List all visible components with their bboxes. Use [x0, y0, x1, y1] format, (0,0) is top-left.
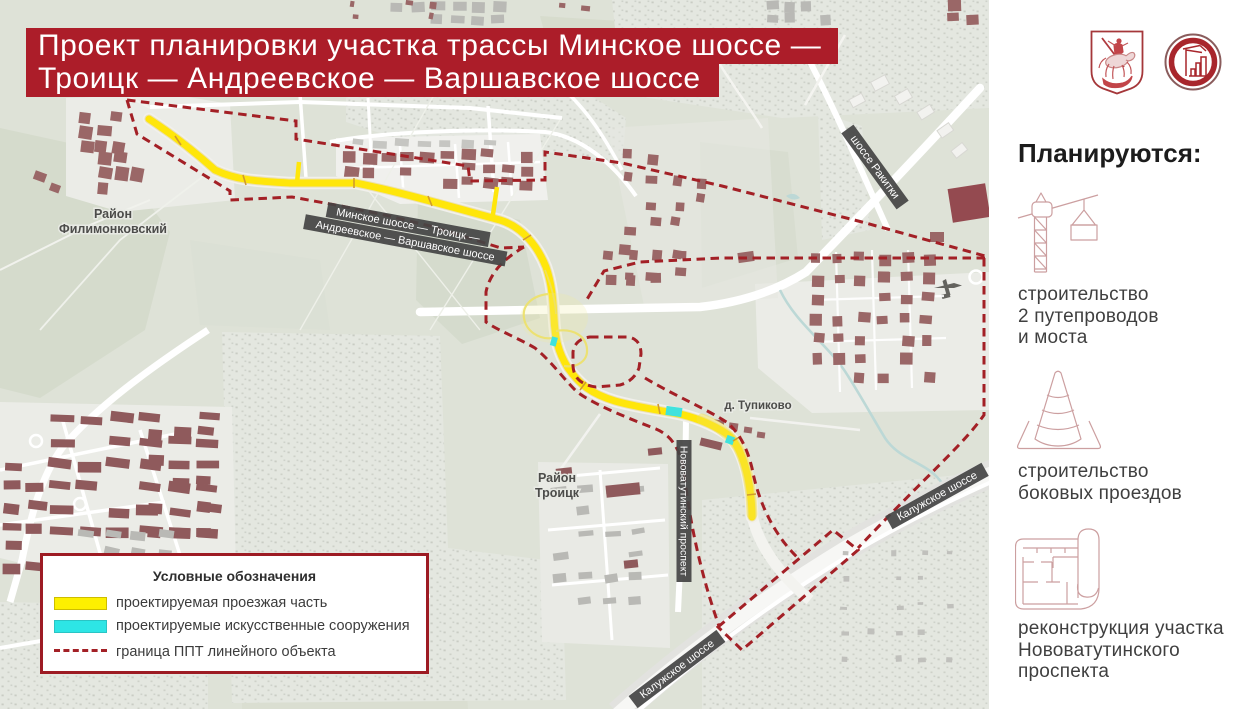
- svg-text:Район: Район: [538, 471, 576, 485]
- svg-text:Район: Район: [94, 207, 132, 221]
- svg-text:д. Тупиково: д. Тупиково: [724, 400, 791, 412]
- svg-text:Филимонковский: Филимонковский: [59, 222, 167, 236]
- svg-text:Троицк: Троицк: [535, 486, 580, 500]
- svg-text:Нововатутинский проспект: Нововатутинский проспект: [678, 446, 690, 577]
